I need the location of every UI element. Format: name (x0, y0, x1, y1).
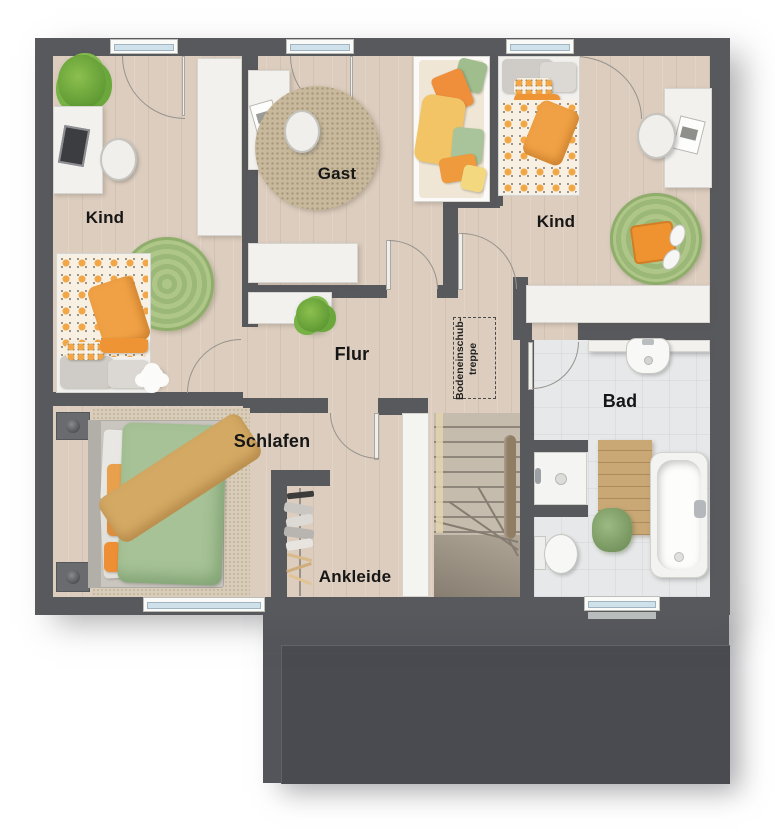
plant-flur (296, 298, 330, 332)
towel-green (592, 508, 632, 552)
stair-stringer-light (436, 413, 443, 533)
room-label-schlafen: Schlafen (232, 431, 312, 452)
chair-kindright (637, 113, 676, 159)
shower-wall-bottom (534, 505, 588, 517)
shower-drain (555, 473, 567, 485)
lower-roof-inner (281, 645, 730, 784)
sink-drain (644, 356, 653, 365)
plant-kindleft (58, 55, 106, 109)
window-kindright (506, 39, 574, 54)
attic-stairs-label-line2: treppe (467, 318, 480, 400)
window-glass (588, 601, 656, 608)
pillow-kindleft-dotted (66, 342, 104, 360)
wall-bad-top-left (513, 323, 532, 340)
chair-kindleft (100, 138, 137, 181)
bathtub-drain (674, 552, 684, 562)
toilet-bowl (544, 534, 578, 574)
attic-stairs-label-line1: Bodeneinschub- (454, 318, 467, 400)
wall-flur-stub (443, 205, 458, 298)
attic-stairs-hatch: Bodeneinschub- treppe (453, 317, 496, 399)
window-glass (114, 44, 174, 51)
wardrobe-kindleft (197, 58, 242, 236)
nightstand-schlafen-top (56, 412, 90, 440)
cloud-table-kindleft (140, 366, 164, 388)
room-label-kind-left: Kind (70, 208, 140, 228)
stair-side-wall (402, 413, 429, 597)
wall-kindleft-schlafen (53, 392, 243, 406)
bathtub-faucet (694, 500, 706, 518)
window-glass (510, 44, 570, 51)
window-bad-sill (588, 612, 656, 619)
staircase (434, 413, 520, 597)
room-label-gast: Gast (302, 164, 372, 184)
sideboard-kindright (526, 285, 710, 323)
window-schlafen (143, 597, 265, 612)
chair-gast (284, 110, 320, 153)
floorplan-canvas: Kind Gast Kind Flur Bodeneinschub- trepp… (0, 0, 775, 840)
wall-ankleide-top (271, 470, 330, 486)
window-glass (290, 44, 350, 51)
sideboard-gast (248, 243, 358, 283)
outer-wall-left (35, 38, 53, 615)
stair-winder-area (434, 535, 520, 597)
nightstand-schlafen-bottom (56, 562, 90, 592)
room-label-ankleide: Ankleide (310, 567, 400, 587)
window-bad (584, 596, 660, 611)
pillow-kindleft-orange (100, 338, 148, 353)
room-label-bad: Bad (590, 391, 650, 412)
stair-handrail (504, 435, 516, 539)
room-label-flur: Flur (317, 344, 387, 365)
rug-gast (255, 86, 379, 210)
shower-faucet (535, 468, 541, 484)
sink-faucet (642, 339, 654, 345)
wall-schlafen-flur (243, 398, 328, 413)
pillow-kindleft-gray (60, 356, 112, 388)
attic-stairs-label: Bodeneinschub- treppe (454, 318, 494, 400)
room-label-kind-right: Kind (521, 212, 591, 232)
window-glass (147, 602, 261, 609)
outer-wall-right (710, 38, 730, 615)
window-kindleft (110, 39, 178, 54)
window-gast (286, 39, 354, 54)
shower-wall-top (534, 440, 588, 452)
